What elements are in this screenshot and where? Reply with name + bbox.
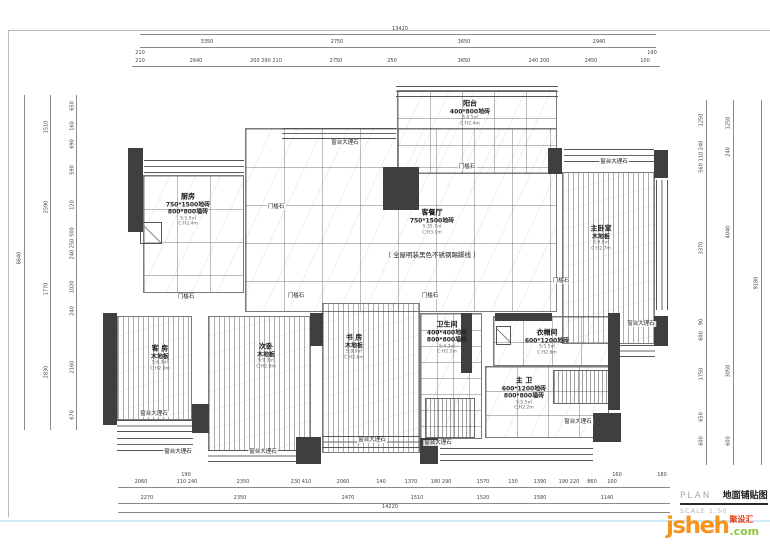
room-area-study [322, 303, 420, 453]
dimension-line [118, 512, 670, 513]
room-name: 阳台 [450, 99, 490, 108]
windowsill-marble-label: 窗台大理石 [599, 159, 629, 165]
title-rule [680, 503, 768, 505]
room-label-master-bedroom: 主卧室木地板S:9.8㎡C:H2.7m [591, 224, 612, 252]
dimension-label: 130 [508, 480, 518, 485]
dimension-label: 600 [700, 331, 705, 341]
dimension-line [24, 95, 25, 430]
room-label-kitchen: 厨房750*1500地砖800*800墙砖S:5.9㎡C:H2.4m [166, 193, 210, 228]
room-sub-info: C:H2.2m [427, 350, 467, 356]
room-sub-info: C:H2.8m [344, 355, 364, 361]
dimension-label: 2350 [237, 480, 250, 485]
dimension-label: 2590 [45, 201, 50, 214]
dimension-label: 1770 [45, 283, 50, 296]
dimension-label: 860 [587, 480, 597, 485]
dimension-label: 3650 [458, 40, 471, 45]
room-sub-info: C:H2.8m [525, 350, 569, 356]
room-name: 卫生间 [427, 321, 467, 330]
dimension-label: 1510 [411, 496, 424, 501]
dimension-label: 1510 [45, 121, 50, 134]
dimension-line [761, 100, 762, 465]
dimension-label: 230 410 [291, 480, 312, 485]
sheet-bottom-line [0, 520, 770, 522]
window [656, 180, 668, 310]
dimension-line [132, 66, 660, 67]
dimension-line [76, 95, 77, 430]
room-sub-info: C:H3.1m [410, 230, 454, 236]
dimension-label: 4040 [727, 226, 732, 239]
room-name: 客餐厅 [410, 208, 454, 217]
dimension-label: 670 [71, 410, 76, 420]
dimension-label: 120 [71, 200, 76, 210]
dimension-line [118, 487, 670, 488]
dimension-label: 160 [612, 473, 622, 478]
room-name: 客 房 [150, 344, 170, 353]
dimension-label: 3370 [700, 242, 705, 255]
dimension-label: 190 220 [559, 480, 580, 485]
dimension-label: 2940 [593, 40, 606, 45]
room-name: 主 卫 [502, 377, 546, 386]
wall-segment [608, 313, 620, 410]
dimension-label: 100 [607, 480, 617, 485]
dimension-label: 1370 [405, 480, 418, 485]
dimension-label: 1750 [700, 368, 705, 381]
dimension-label: 250 [387, 59, 397, 64]
room-label-living-dining: 客餐厅750*1500地砖S:35.7㎡C:H3.1m [410, 208, 454, 236]
dimension-label: 90 [700, 319, 705, 325]
logo-badge-text: 聚设汇 [729, 516, 759, 524]
dimension-label: 3650 [458, 59, 471, 64]
wall-segment [310, 313, 323, 346]
dimension-label: 1020 [71, 281, 76, 294]
dimension-label: 110 240 [700, 141, 705, 162]
windowsill-marble-label: 窗台大理石 [563, 419, 593, 425]
dimension-label: 210 [135, 59, 145, 64]
dimension-label: 1250 [727, 117, 732, 130]
room-label-balcony: 阳台400*800地砖S:4.5㎡C:H2.4m [450, 99, 490, 127]
dimension-line [140, 47, 656, 48]
windowsill-marble-label: 窗台大理石 [248, 449, 278, 455]
dimension-label: 500 [71, 227, 76, 237]
room-tile-spec: 800*800墙砖 [427, 337, 467, 345]
room-label-bathroom: 卫生间400*400地砖800*800墙砖S:4.3㎡C:H2.2m [427, 321, 467, 356]
room-name: 书 房 [344, 333, 364, 342]
dimension-label: 180 [657, 473, 667, 478]
shower-hatch-bathroom [425, 398, 475, 438]
sheet-border-left [8, 30, 9, 517]
dimension-label: 9180 [755, 277, 760, 290]
dimension-label: 200 290 210 [250, 59, 282, 64]
wall-segment [593, 413, 621, 442]
cloakroom-fixture [496, 326, 511, 345]
logo-tld-text: .com [729, 526, 759, 537]
threshold-stone-label: 门槛石 [287, 293, 306, 299]
dimension-label: 2750 [330, 59, 343, 64]
room-sub-info: C:H2.7m [591, 246, 612, 252]
room-label-master-bath: 主 卫600*1200地砖800*800墙砖S:5.5㎡C:H2.2m [502, 377, 546, 412]
dimension-label: 180 290 [431, 480, 452, 485]
dimension-label: 2160 [71, 361, 76, 374]
dimension-line [50, 95, 51, 430]
room-tile-spec: 800*800墙砖 [166, 209, 210, 217]
room-name: 衣帽间 [525, 328, 569, 337]
room-name: 次卧 [256, 342, 276, 351]
dimension-label: 2750 [331, 40, 344, 45]
dimension-label: 650 [71, 101, 76, 111]
dimension-label: 600 [700, 436, 705, 446]
shower-hatch-master-bath [553, 370, 610, 404]
wall-segment [383, 167, 419, 210]
dimension-label: 240 [71, 306, 76, 316]
room-sub-info: C:H2.8m [150, 366, 170, 372]
window [282, 128, 396, 139]
title-block: PLAN 地面铺贴图 SCALE 1:50 [680, 483, 768, 515]
threshold-stone-label: 门槛石 [458, 164, 477, 170]
windowsill-marble-label: 窗台大理石 [626, 321, 656, 327]
wall-segment [296, 437, 321, 464]
room-sub-info: C:H2.4m [166, 222, 210, 228]
dimension-label: 8640 [18, 252, 23, 265]
dimension-label: 2450 [585, 59, 598, 64]
sheet-border-top [8, 30, 770, 31]
dimension-label: 3350 [201, 40, 214, 45]
dimension-label: 240 [727, 147, 732, 157]
dimension-label: 650 [700, 412, 705, 422]
dimension-label: 2060 [135, 480, 148, 485]
dimension-label: 14220 [382, 505, 398, 510]
windowsill-marble-label: 窗台大理石 [139, 411, 169, 417]
window [440, 448, 593, 461]
dimension-label: 2470 [342, 496, 355, 501]
kitchen-sink [140, 222, 162, 244]
windowsill-marble-label: 窗台大理石 [163, 449, 193, 455]
dimension-label: 2640 [190, 59, 203, 64]
window [396, 86, 558, 97]
dimension-label: 2060 [337, 480, 350, 485]
dimension-label: 100 [640, 59, 650, 64]
dimension-label: 1520 [477, 496, 490, 501]
dimension-label: 590 [71, 165, 76, 175]
dimension-label: 140 [376, 480, 386, 485]
room-name: 厨房 [166, 193, 210, 202]
dimension-label: 160 [71, 121, 76, 131]
jsheh-logo[interactable]: jsheh 聚设汇 .com [666, 515, 759, 538]
plan-label: PLAN [680, 491, 712, 501]
dimension-line [733, 100, 734, 465]
dimension-label: 110 240 [177, 480, 198, 485]
room-label-second-bedroom: 次卧木地板S:9.3㎡C:H2.8m [256, 342, 276, 370]
dimension-label: 1570 [477, 480, 490, 485]
dimension-label: 690 [71, 139, 76, 149]
room-sub-info: C:H2.4m [450, 121, 490, 127]
logo-brand-text: jsheh [666, 515, 728, 538]
wall-segment [128, 148, 143, 232]
dimension-label: 600 [727, 436, 732, 446]
wall-segment [103, 313, 117, 425]
dimension-label: 2830 [45, 366, 50, 379]
skirting-note: （ 全屋明装黑色不锈钢踢脚线 ） [384, 249, 479, 259]
room-label-cloakroom: 衣帽间600*1200地砖S:5.5㎡C:H2.8m [525, 328, 569, 356]
wall-segment [192, 404, 209, 433]
wall-segment [495, 313, 552, 321]
threshold-stone-label: 门槛石 [421, 293, 440, 299]
room-sub-info: C:H2.8m [256, 364, 276, 370]
threshold-stone-label: 门槛石 [177, 294, 196, 300]
dimension-label: 190 [647, 51, 657, 56]
windowsill-marble-label: 窗台大理石 [330, 140, 360, 146]
room-label-study: 书 房木地板S:9.0㎡C:H2.8m [344, 333, 364, 361]
threshold-stone-label: 门槛石 [552, 278, 571, 284]
room-name: 主卧室 [591, 224, 612, 233]
floor-plan-sheet: 1342033502750365029402102102640200 290 2… [0, 0, 770, 551]
threshold-stone-label: 门槛石 [267, 204, 286, 210]
dimension-label: 210 [135, 51, 145, 56]
windowsill-marble-label: 窗台大理石 [357, 437, 387, 443]
room-sub-info: C:H2.2m [502, 406, 546, 412]
dimension-label: 13420 [392, 27, 408, 32]
dimension-label: 190 [181, 473, 191, 478]
windowsill-marble-label: 窗台大理石 [423, 440, 453, 446]
wall-segment [548, 148, 562, 174]
dimension-label: 1580 [534, 496, 547, 501]
dimension-label: 2270 [141, 496, 154, 501]
dimension-line [140, 34, 656, 35]
dimension-label: 240 200 [529, 59, 550, 64]
dimension-line [706, 100, 707, 465]
dimension-label: 560 [700, 163, 705, 173]
dimension-label: 2350 [234, 496, 247, 501]
dimension-label: 1140 [601, 496, 614, 501]
wall-segment [654, 316, 668, 346]
dimension-label: 1250 [700, 114, 705, 127]
window [144, 160, 244, 173]
logo-right-stack: 聚设汇 .com [729, 516, 759, 537]
room-label-guest-room: 客 房木地板S:6.3㎡C:H2.8m [150, 344, 170, 372]
dimension-label: 240 250 [71, 239, 76, 260]
room-area-second-bedroom [208, 316, 311, 451]
dimension-label: 1390 [534, 480, 547, 485]
wall-segment [654, 150, 668, 178]
window-sill [117, 420, 193, 432]
room-tile-spec: 800*800墙砖 [502, 393, 546, 401]
dimension-label: 3050 [727, 365, 732, 378]
drawing-name: 地面铺贴图 [723, 488, 768, 501]
